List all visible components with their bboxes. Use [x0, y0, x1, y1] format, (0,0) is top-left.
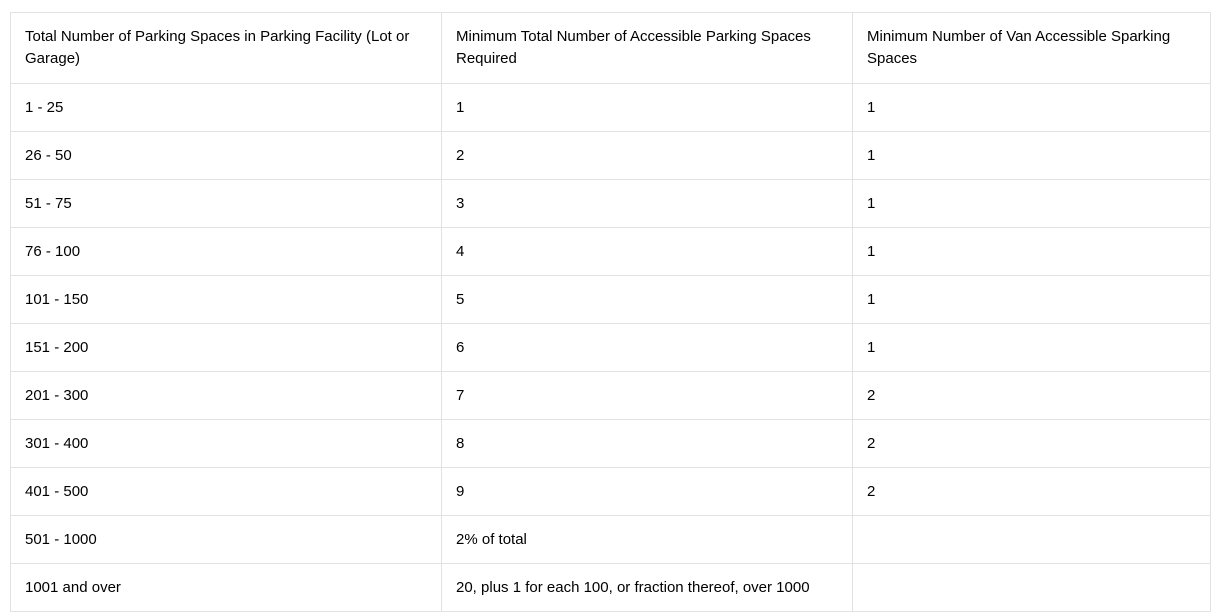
page: Total Number of Parking Spaces in Parkin…: [0, 0, 1226, 616]
table-cell: 2% of total: [442, 516, 853, 564]
table-cell: [853, 564, 1211, 612]
table-row: 301 - 400 8 2: [11, 420, 1211, 468]
table-cell: 51 - 75: [11, 180, 442, 228]
table-row: 51 - 75 3 1: [11, 180, 1211, 228]
table-cell: 9: [442, 468, 853, 516]
table-cell: 2: [853, 420, 1211, 468]
table-cell: 1: [442, 84, 853, 132]
table-row: 26 - 50 2 1: [11, 132, 1211, 180]
table-row: 1 - 25 1 1: [11, 84, 1211, 132]
accessible-parking-requirements-table: Total Number of Parking Spaces in Parkin…: [10, 12, 1211, 612]
table-cell: 5: [442, 276, 853, 324]
table-row: 501 - 1000 2% of total: [11, 516, 1211, 564]
table-cell: 7: [442, 372, 853, 420]
table-row: 201 - 300 7 2: [11, 372, 1211, 420]
column-header-min-accessible: Minimum Total Number of Accessible Parki…: [442, 13, 853, 84]
table-cell: 2: [853, 468, 1211, 516]
table-cell: 1: [853, 228, 1211, 276]
table-cell: 1: [853, 84, 1211, 132]
table-cell: [853, 516, 1211, 564]
table-cell: 1001 and over: [11, 564, 442, 612]
table-cell: 26 - 50: [11, 132, 442, 180]
table-row: 76 - 100 4 1: [11, 228, 1211, 276]
table-cell: 2: [853, 372, 1211, 420]
table-cell: 6: [442, 324, 853, 372]
table-cell: 1: [853, 132, 1211, 180]
column-header-total-spaces: Total Number of Parking Spaces in Parkin…: [11, 13, 442, 84]
header-row: Total Number of Parking Spaces in Parkin…: [11, 13, 1211, 84]
table-cell: 1: [853, 276, 1211, 324]
table-cell: 101 - 150: [11, 276, 442, 324]
table-cell: 3: [442, 180, 853, 228]
table-cell: 2: [442, 132, 853, 180]
table-cell: 1: [853, 324, 1211, 372]
table-cell: 20, plus 1 for each 100, or fraction the…: [442, 564, 853, 612]
table-row: 101 - 150 5 1: [11, 276, 1211, 324]
table-row: 151 - 200 6 1: [11, 324, 1211, 372]
table-row: 401 - 500 9 2: [11, 468, 1211, 516]
table-cell: 151 - 200: [11, 324, 442, 372]
table-cell: 1: [853, 180, 1211, 228]
column-header-min-van-accessible: Minimum Number of Van Accessible Sparkin…: [853, 13, 1211, 84]
table-cell: 8: [442, 420, 853, 468]
table-row: 1001 and over 20, plus 1 for each 100, o…: [11, 564, 1211, 612]
table-cell: 201 - 300: [11, 372, 442, 420]
table-cell: 501 - 1000: [11, 516, 442, 564]
table-cell: 401 - 500: [11, 468, 442, 516]
table-cell: 1 - 25: [11, 84, 442, 132]
table-cell: 76 - 100: [11, 228, 442, 276]
table-cell: 4: [442, 228, 853, 276]
table-cell: 301 - 400: [11, 420, 442, 468]
